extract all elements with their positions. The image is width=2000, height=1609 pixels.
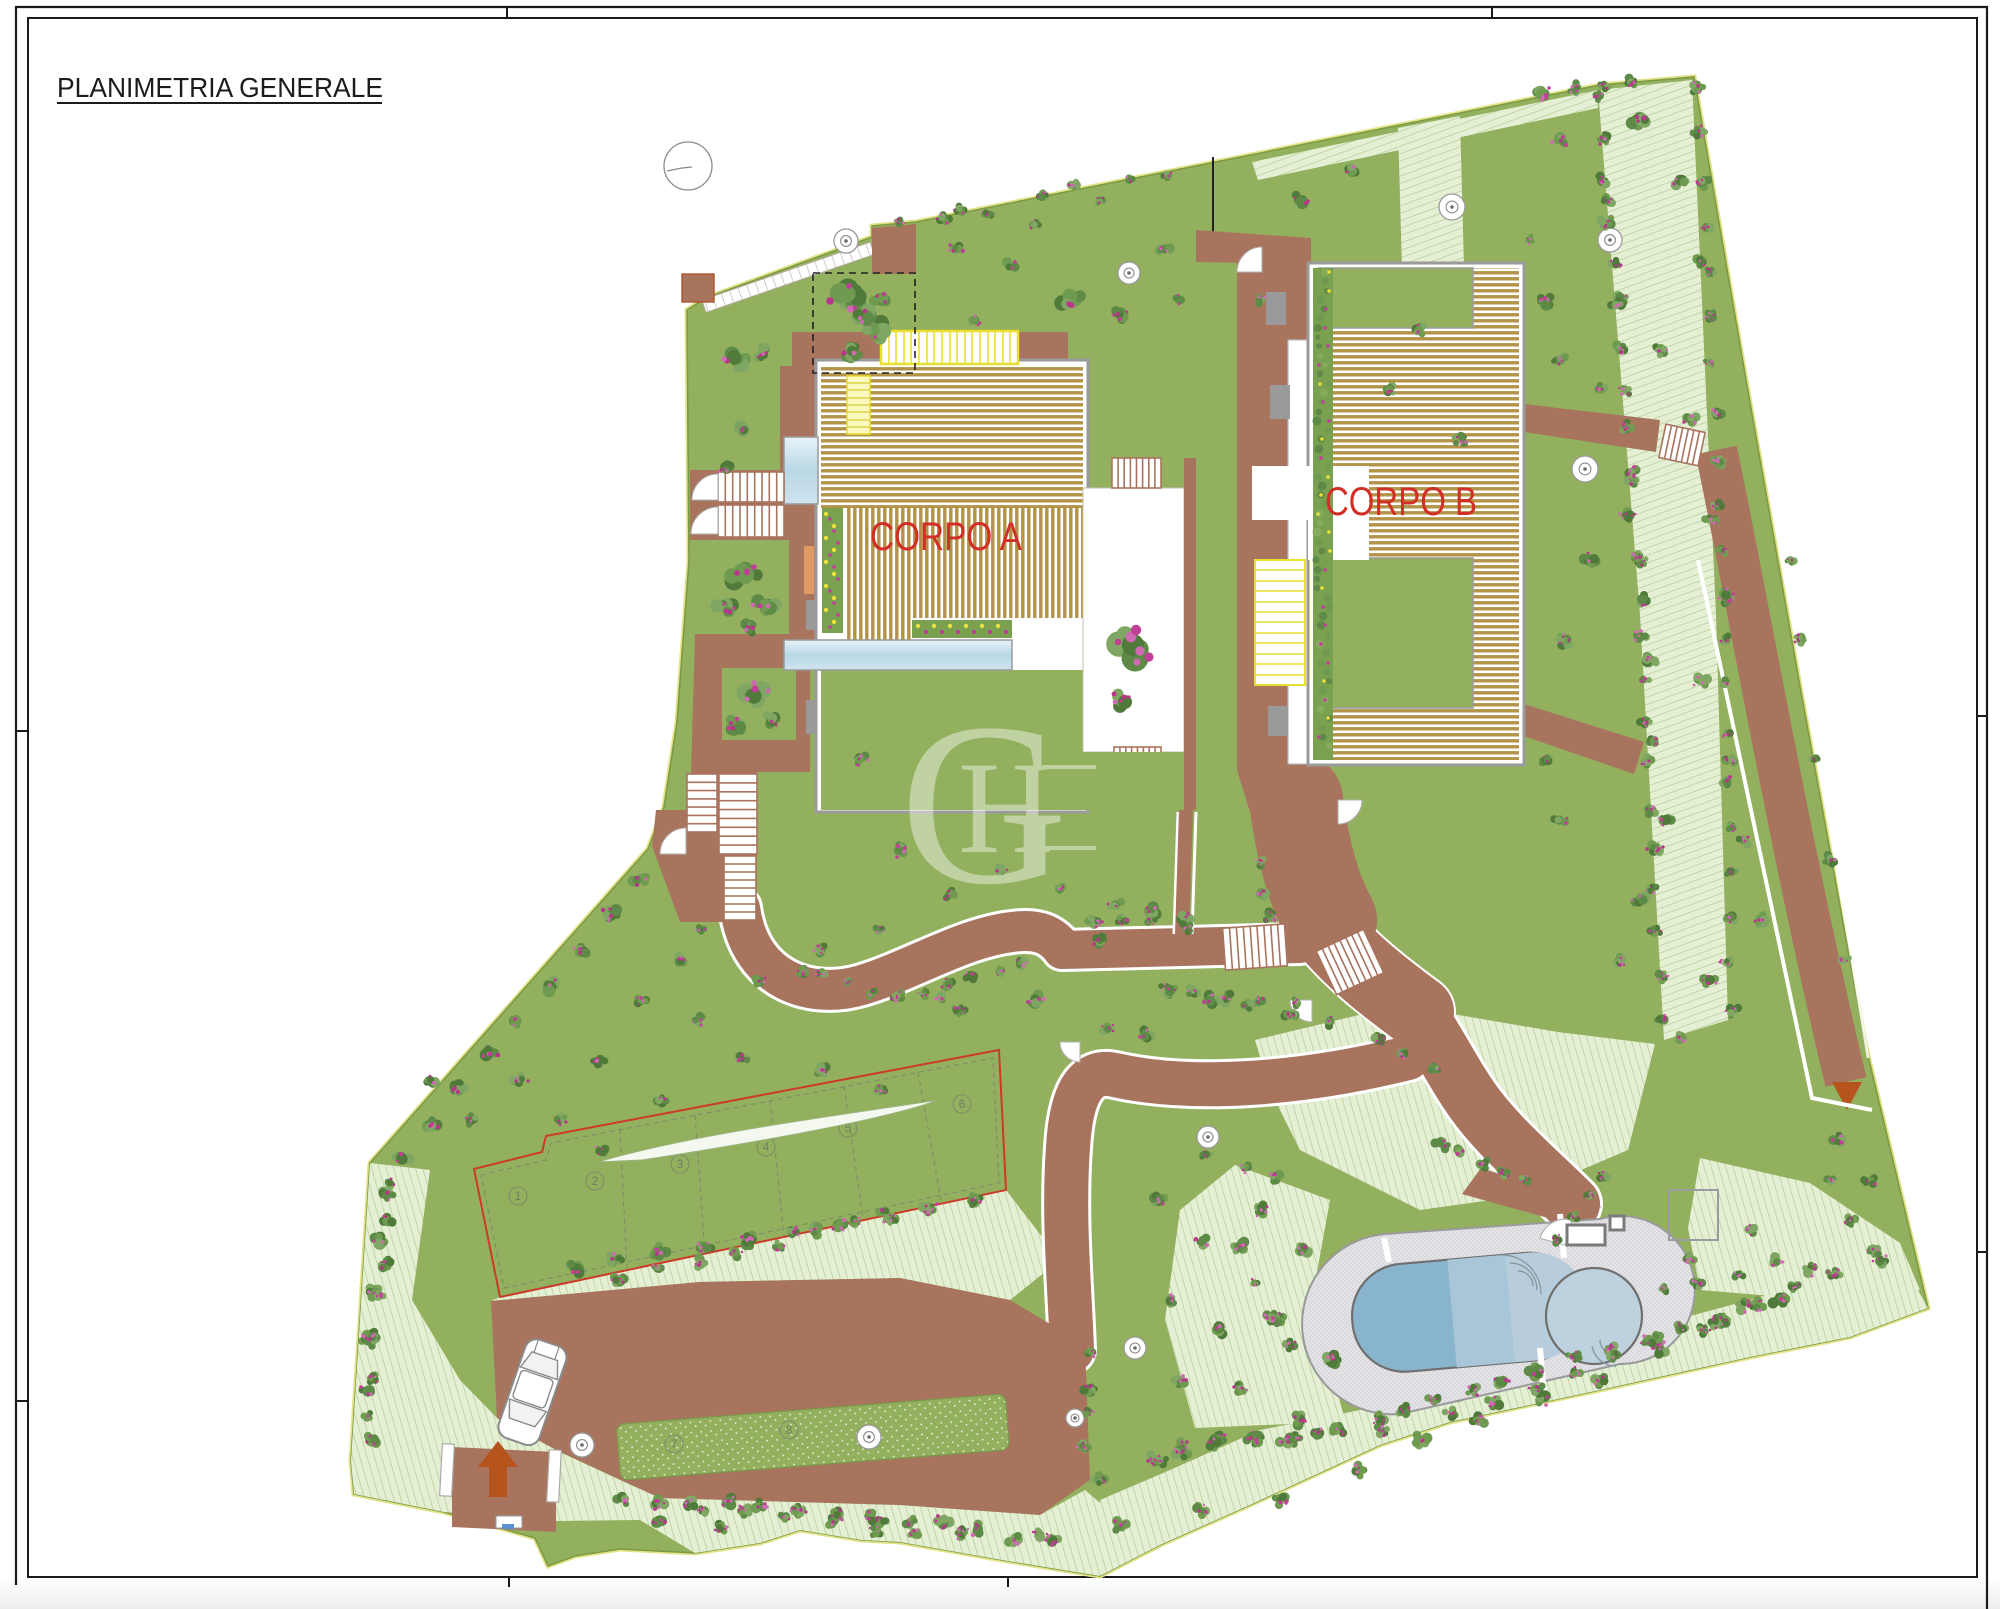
svg-text:PLANIMETRIA GENERALE: PLANIMETRIA GENERALE bbox=[57, 72, 383, 103]
svg-text:H: H bbox=[958, 734, 1053, 881]
svg-text:7: 7 bbox=[671, 1437, 678, 1451]
svg-text:6: 6 bbox=[959, 1097, 966, 1111]
svg-text:3: 3 bbox=[677, 1157, 684, 1171]
svg-text:CORPO A: CORPO A bbox=[870, 515, 1022, 559]
svg-text:8: 8 bbox=[786, 1423, 793, 1437]
svg-text:CORPO B: CORPO B bbox=[1325, 480, 1477, 524]
svg-text:2: 2 bbox=[592, 1174, 599, 1188]
svg-text:1: 1 bbox=[515, 1189, 522, 1203]
svg-text:4: 4 bbox=[763, 1140, 770, 1154]
